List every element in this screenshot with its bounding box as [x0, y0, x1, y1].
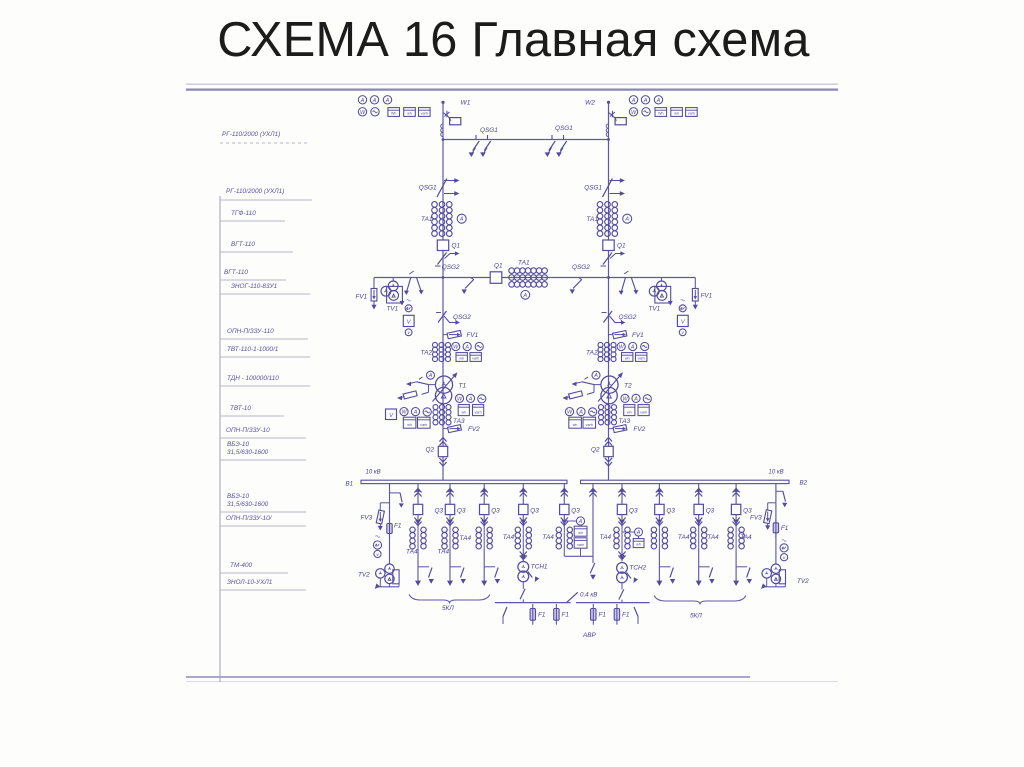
svg-text:В2: В2	[800, 480, 808, 487]
svg-text:F1: F1	[599, 612, 607, 619]
svg-text:A: A	[459, 217, 464, 223]
svg-text:F1: F1	[538, 612, 546, 619]
svg-text:ТГФ-110: ТГФ-110	[231, 210, 256, 217]
svg-text:A: A	[636, 530, 641, 536]
svg-text:0,4 кВ: 0,4 кВ	[580, 592, 597, 599]
svg-text:A: A	[578, 519, 583, 525]
svg-text:A: A	[468, 396, 473, 402]
svg-text:A: A	[633, 396, 638, 402]
svg-text:A: A	[372, 98, 377, 104]
svg-text:TV2: TV2	[797, 578, 809, 585]
svg-text:Wh: Wh	[391, 111, 396, 115]
svg-text:ВБЭ-10: ВБЭ-10	[227, 441, 249, 448]
svg-text:A: A	[643, 98, 648, 104]
svg-text:A: A	[624, 217, 629, 223]
svg-text:F1: F1	[562, 612, 570, 619]
svg-text:A: A	[522, 293, 527, 299]
svg-text:TV1: TV1	[387, 306, 399, 313]
svg-text:Wh: Wh	[658, 111, 663, 115]
svg-text:QSG2: QSG2	[442, 264, 460, 271]
svg-text:Q3: Q3	[571, 507, 580, 514]
svg-text:A: A	[593, 373, 598, 379]
svg-text:FV2: FV2	[634, 426, 646, 433]
svg-text:В1: В1	[346, 480, 354, 487]
svg-text:ТА3: ТА3	[453, 418, 465, 425]
svg-text:QSG2: QSG2	[572, 264, 590, 271]
svg-text:varh: varh	[475, 411, 482, 415]
svg-text:Q3: Q3	[666, 507, 675, 514]
svg-text:ТА4: ТА4	[503, 534, 515, 541]
svg-text:varh: varh	[638, 356, 645, 360]
svg-text:varh: varh	[586, 423, 593, 427]
svg-text:31,5/630-1600: 31,5/630-1600	[227, 449, 269, 456]
svg-text:A: A	[578, 410, 583, 416]
svg-text:Q2: Q2	[591, 447, 600, 454]
svg-text:A: A	[360, 98, 365, 104]
svg-text:QSG1: QSG1	[584, 185, 602, 192]
svg-text:ТА4: ТА4	[542, 534, 554, 541]
svg-text:QSG1: QSG1	[480, 127, 498, 134]
svg-text:wh: wh	[459, 356, 464, 360]
svg-text:СХЕМА 16 Главная схема: СХЕМА 16 Главная схема	[217, 13, 810, 67]
svg-text:A: A	[413, 410, 418, 416]
svg-text:ТДН - 100000/110: ТДН - 100000/110	[227, 375, 279, 382]
svg-text:ТА4: ТА4	[600, 534, 612, 541]
svg-text:ТА1: ТА1	[518, 260, 530, 267]
svg-text:T1: T1	[459, 383, 467, 390]
svg-text:wh: wh	[407, 111, 412, 115]
svg-text:FV3: FV3	[361, 515, 373, 522]
svg-text:ТА4: ТА4	[678, 534, 690, 541]
svg-text:31,5/630-1600: 31,5/630-1600	[227, 501, 269, 508]
svg-text:wh: wh	[407, 423, 412, 427]
svg-text:ТА1: ТА1	[586, 216, 598, 223]
svg-text:ОПН-П/ЗЗУ-10/: ОПН-П/ЗЗУ-10/	[226, 515, 273, 522]
svg-text:TV2: TV2	[358, 572, 370, 579]
svg-text:T2: T2	[624, 383, 632, 390]
svg-text:ТА4: ТА4	[740, 534, 752, 541]
svg-text:ТА4: ТА4	[707, 534, 719, 541]
svg-text:W1: W1	[461, 100, 471, 107]
svg-text:QSG2: QSG2	[619, 314, 637, 321]
svg-text:10 кВ: 10 кВ	[769, 470, 784, 476]
svg-text:varh: varh	[577, 543, 584, 547]
svg-text:varh: varh	[472, 356, 479, 360]
svg-text:varh: varh	[420, 423, 427, 427]
svg-text:ВГТ-110: ВГТ-110	[231, 241, 255, 248]
svg-text:ТВТ-110-1-1000/1: ТВТ-110-1-1000/1	[227, 346, 279, 353]
svg-text:РГ-110/2000 (УХЛ1): РГ-110/2000 (УХЛ1)	[226, 188, 284, 195]
svg-text:ТА4: ТА4	[460, 535, 472, 542]
svg-text:wh: wh	[573, 423, 578, 427]
svg-text:ТВТ-10: ТВТ-10	[230, 405, 251, 412]
svg-text:QSG2: QSG2	[453, 314, 471, 321]
svg-text:10 кВ: 10 кВ	[366, 470, 381, 476]
svg-text:ЗНОГ-110-83У1: ЗНОГ-110-83У1	[231, 283, 278, 290]
svg-text:ТА1: ТА1	[421, 216, 433, 223]
svg-text:ТСН2: ТСН2	[630, 565, 647, 572]
svg-text:Q1: Q1	[617, 243, 626, 250]
svg-text:A: A	[428, 373, 433, 379]
svg-text:ТА2: ТА2	[586, 350, 598, 357]
svg-text:wh: wh	[461, 411, 466, 415]
svg-text:ЗНОЛ-10-УХЛ1: ЗНОЛ-10-УХЛ1	[227, 579, 273, 586]
svg-text:A: A	[631, 98, 636, 104]
svg-text:Q3: Q3	[457, 507, 466, 514]
svg-text:Q3: Q3	[530, 507, 539, 514]
svg-text:varh: varh	[688, 111, 695, 115]
svg-text:FV1: FV1	[632, 332, 644, 339]
svg-text:5КЛ: 5КЛ	[690, 613, 702, 620]
svg-text:ТА2: ТА2	[420, 350, 432, 357]
svg-text:QSG1: QSG1	[419, 185, 437, 192]
svg-text:varh: varh	[421, 111, 428, 115]
svg-text:АВР: АВР	[582, 632, 597, 639]
svg-text:wh: wh	[625, 356, 630, 360]
svg-text:ТА4: ТА4	[406, 549, 418, 556]
svg-text:A: A	[630, 345, 635, 351]
svg-text:F1: F1	[622, 612, 630, 619]
svg-text:QSG1: QSG1	[555, 125, 573, 132]
svg-text:5КЛ: 5КЛ	[442, 605, 454, 612]
svg-text:Q3: Q3	[706, 507, 715, 514]
svg-text:ТСН1: ТСН1	[531, 564, 548, 571]
svg-text:Q3: Q3	[743, 507, 752, 514]
svg-text:FV1: FV1	[356, 294, 368, 301]
svg-text:F1: F1	[394, 523, 402, 530]
svg-text:A: A	[656, 98, 661, 104]
svg-text:Q1: Q1	[452, 243, 461, 250]
svg-text:ВГТ-110: ВГТ-110	[224, 269, 248, 276]
svg-text:wh: wh	[674, 111, 679, 115]
svg-text:Q3: Q3	[491, 507, 500, 514]
svg-text:A: A	[464, 345, 469, 351]
svg-text:FV1: FV1	[467, 332, 479, 339]
svg-text:FV3: FV3	[750, 515, 762, 522]
svg-text:ТМ-400: ТМ-400	[230, 562, 253, 569]
svg-text:ОПН-П/ЗЗУ-110: ОПН-П/ЗЗУ-110	[227, 328, 274, 335]
svg-text:Q2: Q2	[425, 447, 434, 454]
svg-text:ОПН-П/ЗЗУ-10: ОПН-П/ЗЗУ-10	[226, 427, 270, 434]
svg-text:ВБЭ-10: ВБЭ-10	[227, 493, 249, 500]
svg-text:A: A	[385, 98, 390, 104]
svg-text:Q3: Q3	[434, 507, 443, 514]
svg-text:ТА3: ТА3	[619, 418, 631, 425]
svg-text:FV2: FV2	[468, 426, 480, 433]
svg-text:Q1: Q1	[494, 263, 503, 270]
svg-text:РГ-110/2000 (УХЛ1): РГ-110/2000 (УХЛ1)	[222, 131, 280, 138]
svg-text:wh: wh	[627, 411, 632, 415]
svg-text:FV1: FV1	[701, 293, 713, 300]
svg-text:varh: varh	[640, 411, 647, 415]
svg-text:TV1: TV1	[649, 306, 661, 313]
svg-text:W2: W2	[585, 100, 595, 107]
svg-text:wh: wh	[636, 543, 641, 547]
svg-text:Q3: Q3	[629, 507, 638, 514]
svg-text:F1: F1	[781, 525, 789, 532]
svg-text:ТА4: ТА4	[438, 549, 450, 556]
svg-text:wh: wh	[578, 531, 583, 535]
